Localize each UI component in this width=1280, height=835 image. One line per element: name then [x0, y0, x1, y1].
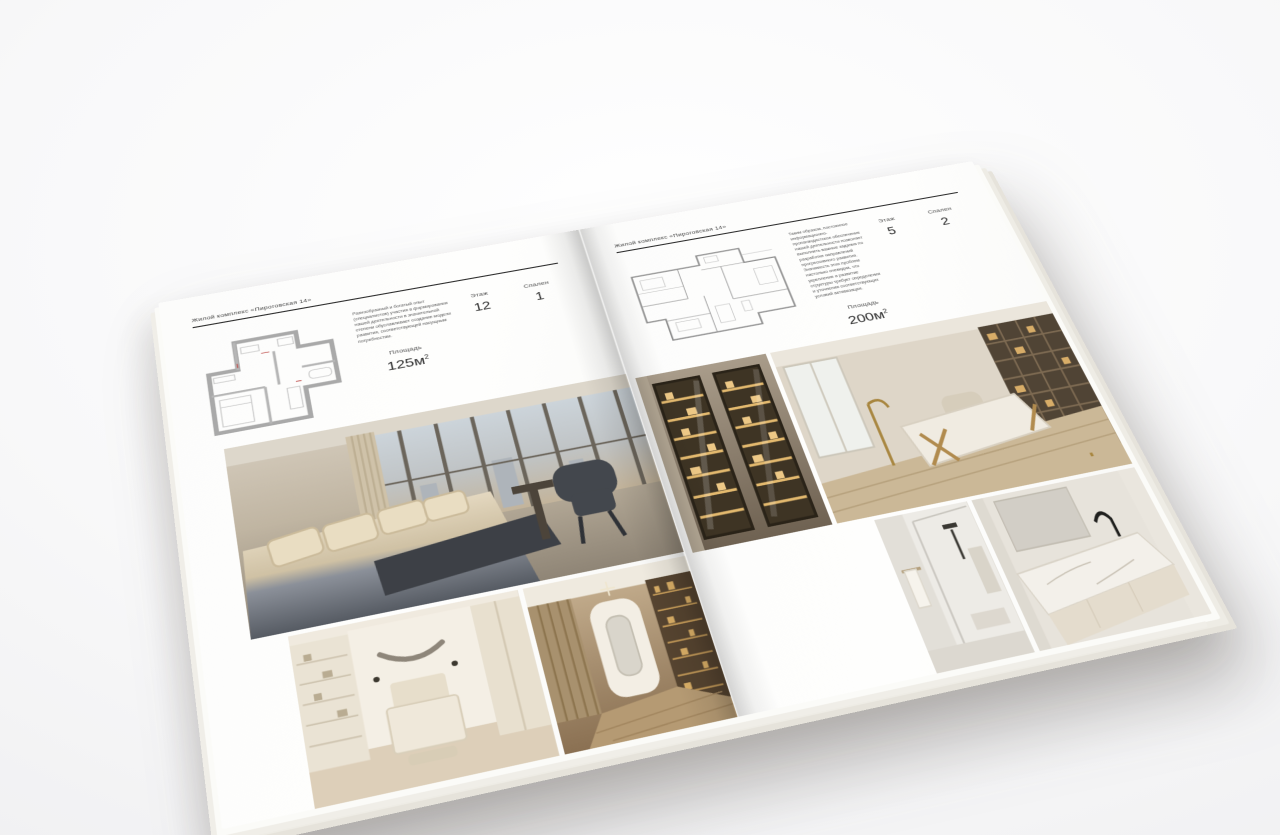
description-text: Разнообразный и богатый опыт (специалист…: [352, 294, 458, 345]
stat-area-sup: 2: [424, 353, 430, 360]
brochure-spread: Жилой комплекс «Пироговская 14»: [158, 161, 1212, 829]
stat-floor: Этаж 12: [454, 287, 511, 326]
floor-plan-drawing: [616, 234, 814, 353]
stat-area: Площадь 200м2: [842, 298, 891, 327]
stat-area: Площадь 125м2: [384, 343, 431, 374]
backdrop: Жилой комплекс «Пироговская 14»: [0, 0, 1280, 835]
floor-plan-125: [190, 314, 361, 446]
stat-bedrooms: Спален 1: [507, 276, 573, 316]
stat-area-sup: 2: [882, 308, 889, 315]
